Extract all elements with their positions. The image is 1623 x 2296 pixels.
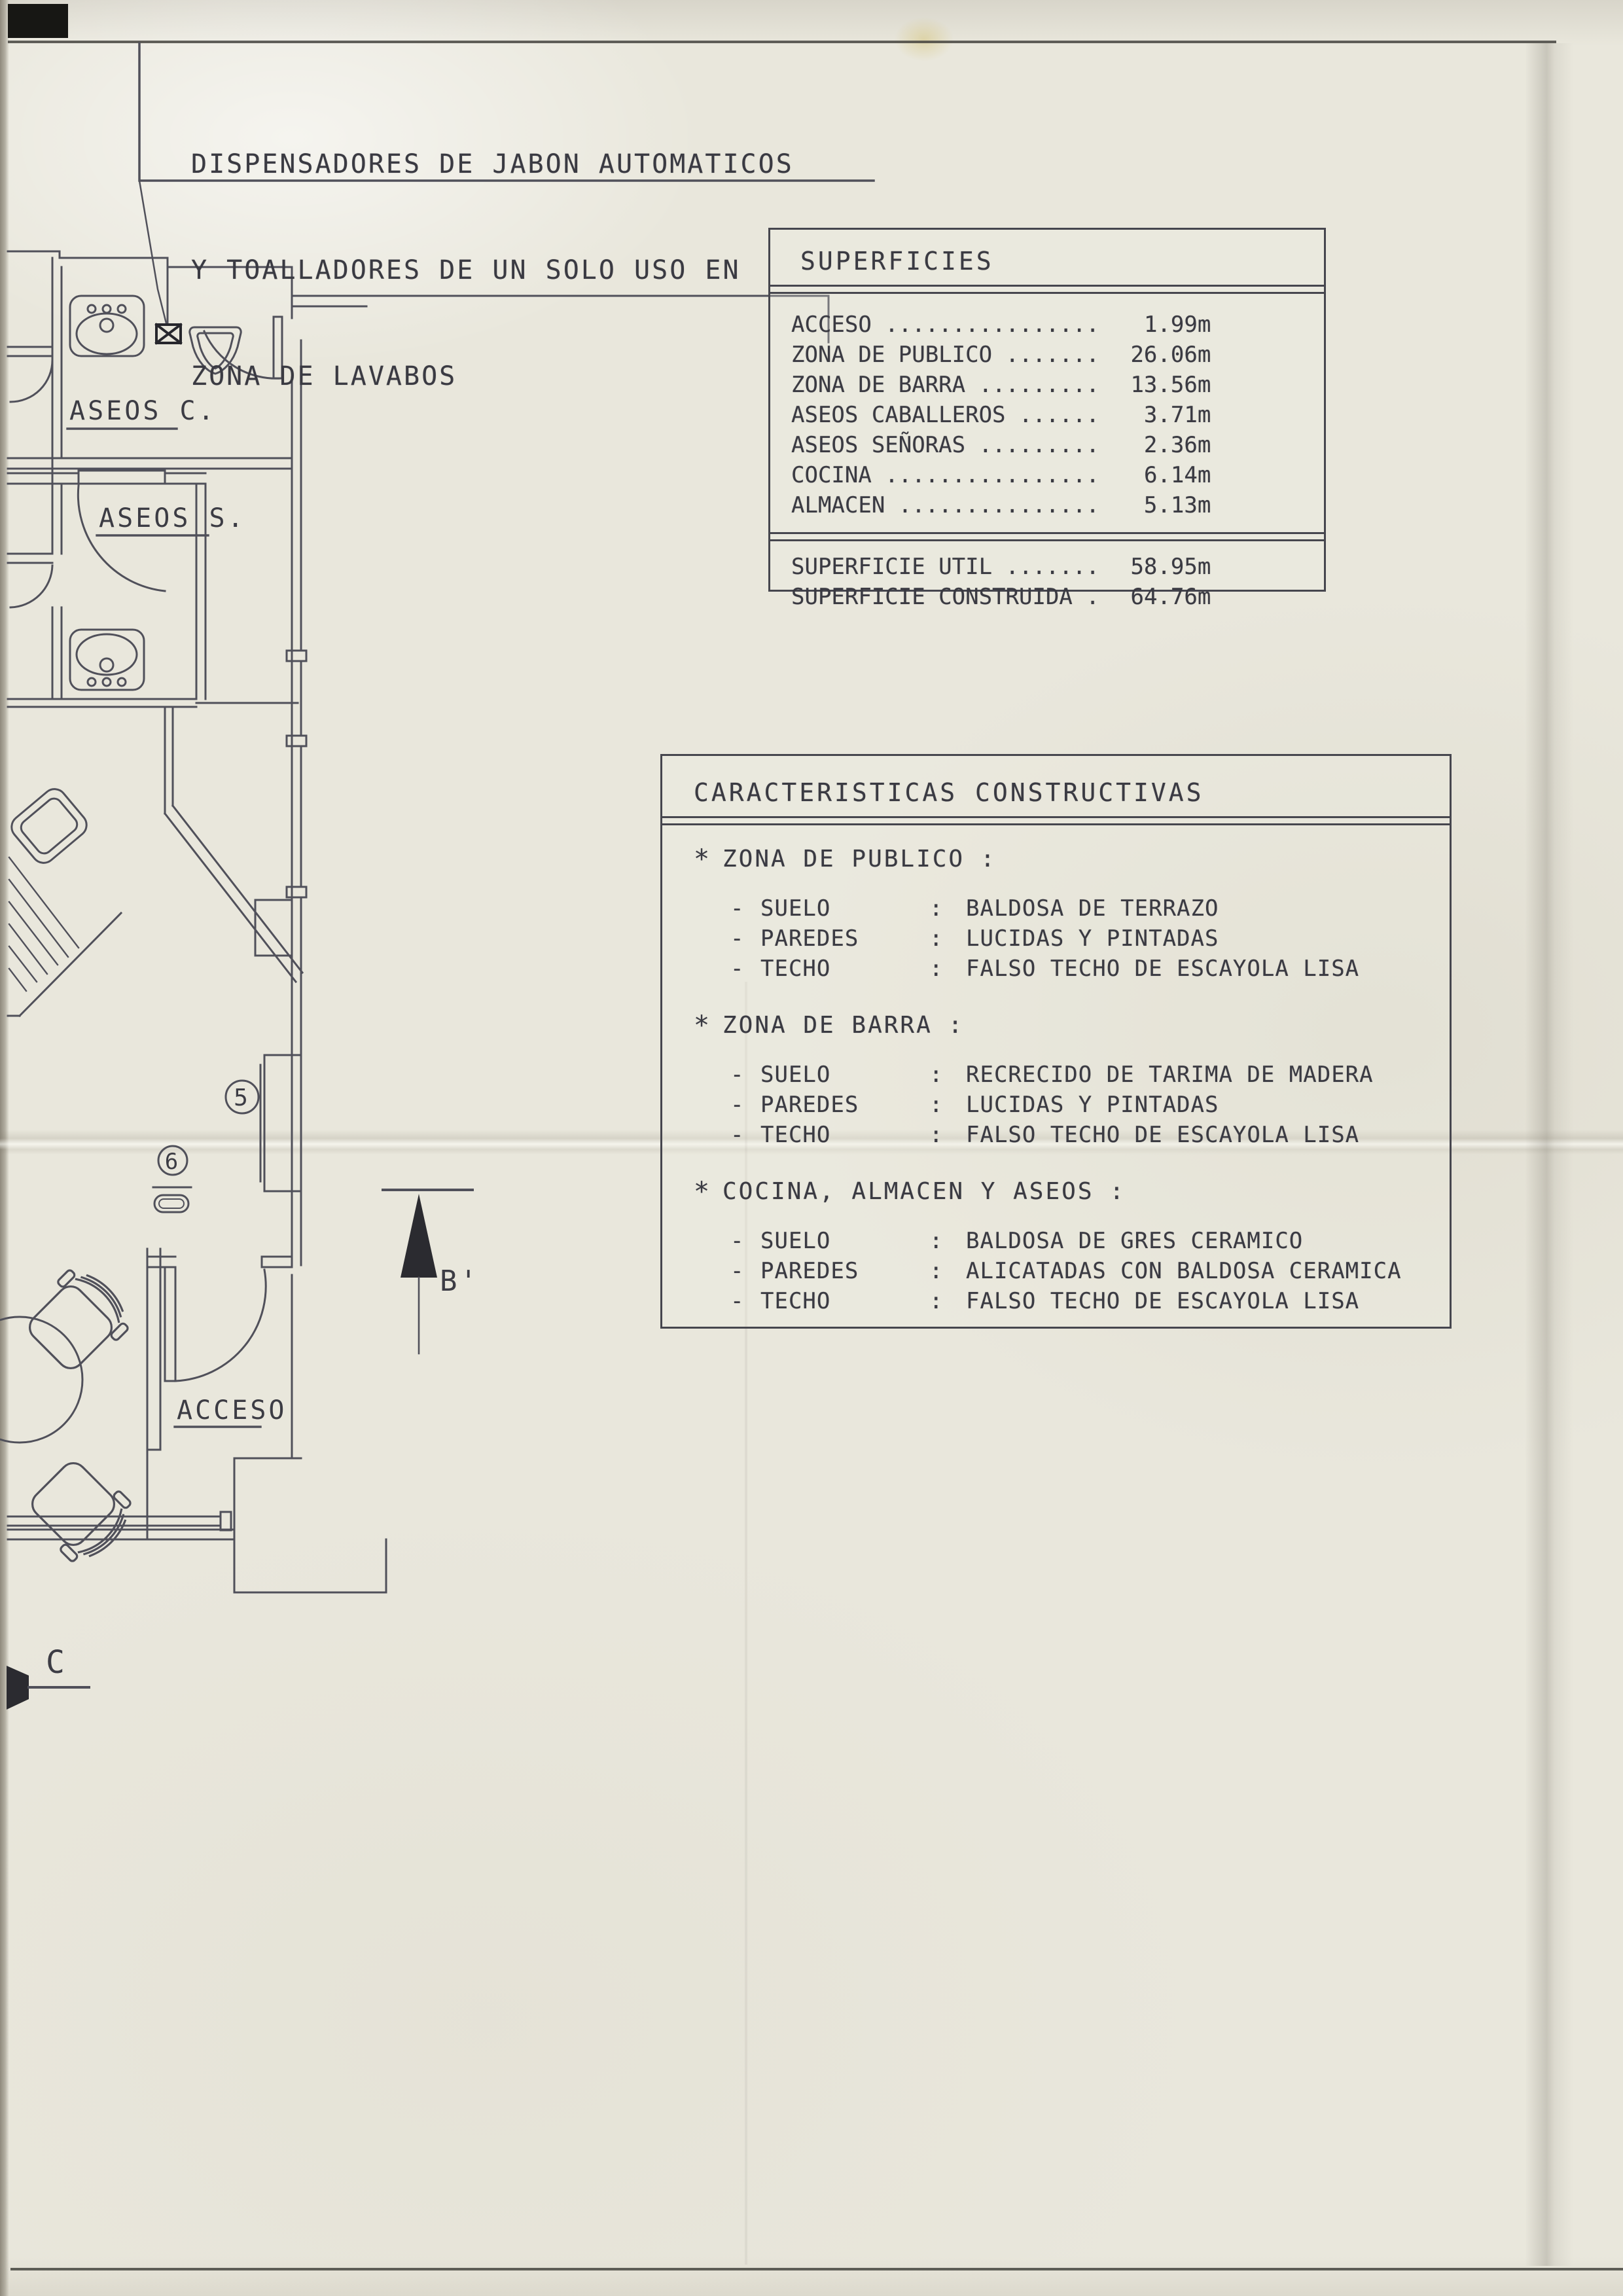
caracteristicas-table: CARACTERISTICAS CONSTRUCTIVAS *ZONA DE P… [660,754,1452,1329]
scanned-floorplan-sheet: ASEOS C. ASEOS S. ACCESO 5 6 B' C DISPEN… [0,0,1623,2296]
section-label-b: B' [440,1265,480,1298]
table-row: COCINA ................6.14m [791,460,1324,490]
table-row: ACCESO ................1.99m [791,310,1324,340]
caracteristicas-section-barra: *ZONA DE BARRA: -SUELO:RECRECIDO DE TARI… [694,1011,1436,1150]
corner-basin [7,784,91,867]
section-heading: ZONA DE PUBLICO [722,845,965,874]
superficies-totals-separator [770,532,1324,541]
spec-row: -TECHO:FALSO TECHO DE ESCAYOLA LISA [694,1286,1436,1316]
bottom-walls [8,1458,386,1592]
superficies-title-separator [770,285,1324,294]
annotation-note: DISPENSADORES DE JABON AUTOMATICOS Y TOA… [191,76,794,465]
spec-row: -SUELO:BALDOSA DE GRES CERAMICO [694,1226,1436,1256]
superficies-items: ACCESO ................1.99m ZONA DE PUB… [770,294,1324,520]
annotation-line-2: Y TOALLADORES DE UN SOLO USO EN [191,253,794,288]
bar-counter-walls [8,707,302,1016]
spec-row: -TECHO:FALSO TECHO DE ESCAYOLA LISA [694,1120,1436,1150]
keyed-number-5: 5 [234,1085,251,1111]
section-heading: ZONA DE BARRA [722,1011,933,1040]
table-row: ALMACEN ...............5.13m [791,490,1324,520]
spec-row: -PAREDES:LUCIDAS Y PINTADAS [694,1090,1436,1120]
table-row: SUPERFICIE UTIL .......58.95m [791,552,1324,582]
annotation-line-1: DISPENSADORES DE JABON AUTOMATICOS [191,147,794,182]
caracteristicas-title-separator [662,816,1450,825]
caracteristicas-body: *ZONA DE PUBLICO: -SUELO:BALDOSA DE TERR… [662,825,1450,1316]
right-wall-glazing [255,651,306,956]
left-door-upper [8,347,52,402]
table-row: ASEOS SEÑORAS .........2.36m [791,430,1324,460]
superficies-totals: SUPERFICIE UTIL .......58.95m SUPERFICIE… [770,541,1324,612]
soap-dispenser-symbol [156,325,181,343]
hatch-strip [9,857,79,991]
chair-lower [20,1451,141,1571]
keyed-number-6: 6 [165,1149,181,1175]
table-row: ZONA DE PUBLICO .......26.06m [791,340,1324,370]
spec-row: -SUELO:RECRECIDO DE TARIMA DE MADERA [694,1060,1436,1090]
asterisk-marker: * [694,1177,722,1206]
caracteristicas-section-publico: *ZONA DE PUBLICO: -SUELO:BALDOSA DE TERR… [694,845,1436,984]
asterisk-marker: * [694,1011,722,1040]
sink-aseos-c [70,296,144,356]
acceso-corridor-walls [147,1249,292,1539]
room-label-aseos-s: ASEOS S. [99,503,246,533]
spec-row: -PAREDES:LUCIDAS Y PINTADAS [694,924,1436,954]
round-table [0,1317,82,1443]
section-heading: COCINA, ALMACEN Y ASEOS [722,1177,1094,1206]
caracteristicas-section-cocina: *COCINA, ALMACEN Y ASEOS: -SUELO:BALDOSA… [694,1177,1436,1316]
superficies-title: SUPERFICIES [770,240,1324,285]
sink-aseos-s [70,630,144,690]
spec-row: -SUELO:BALDOSA DE TERRAZO [694,893,1436,924]
caracteristicas-title: CARACTERISTICAS CONSTRUCTIVAS [662,770,1450,816]
spec-row: -TECHO:FALSO TECHO DE ESCAYOLA LISA [694,954,1436,984]
room-label-acceso: ACCESO [177,1395,287,1426]
table-row: ZONA DE BARRA .........13.56m [791,370,1324,400]
table-row: SUPERFICIE CONSTRUIDA .64.76m [791,582,1324,612]
spec-row: -PAREDES:ALICATADAS CON BALDOSA CERAMICA [694,1256,1436,1286]
superficies-table: SUPERFICIES ACCESO ................1.99m… [768,228,1326,592]
annotation-line-3: ZONA DE LAVABOS [191,359,794,394]
asterisk-marker: * [694,845,722,874]
table-row: ASEOS CABALLEROS ......3.71m [791,400,1324,430]
section-label-c: C [46,1644,67,1681]
keyed-item-5 [226,1055,301,1191]
left-door-lower [8,469,62,699]
